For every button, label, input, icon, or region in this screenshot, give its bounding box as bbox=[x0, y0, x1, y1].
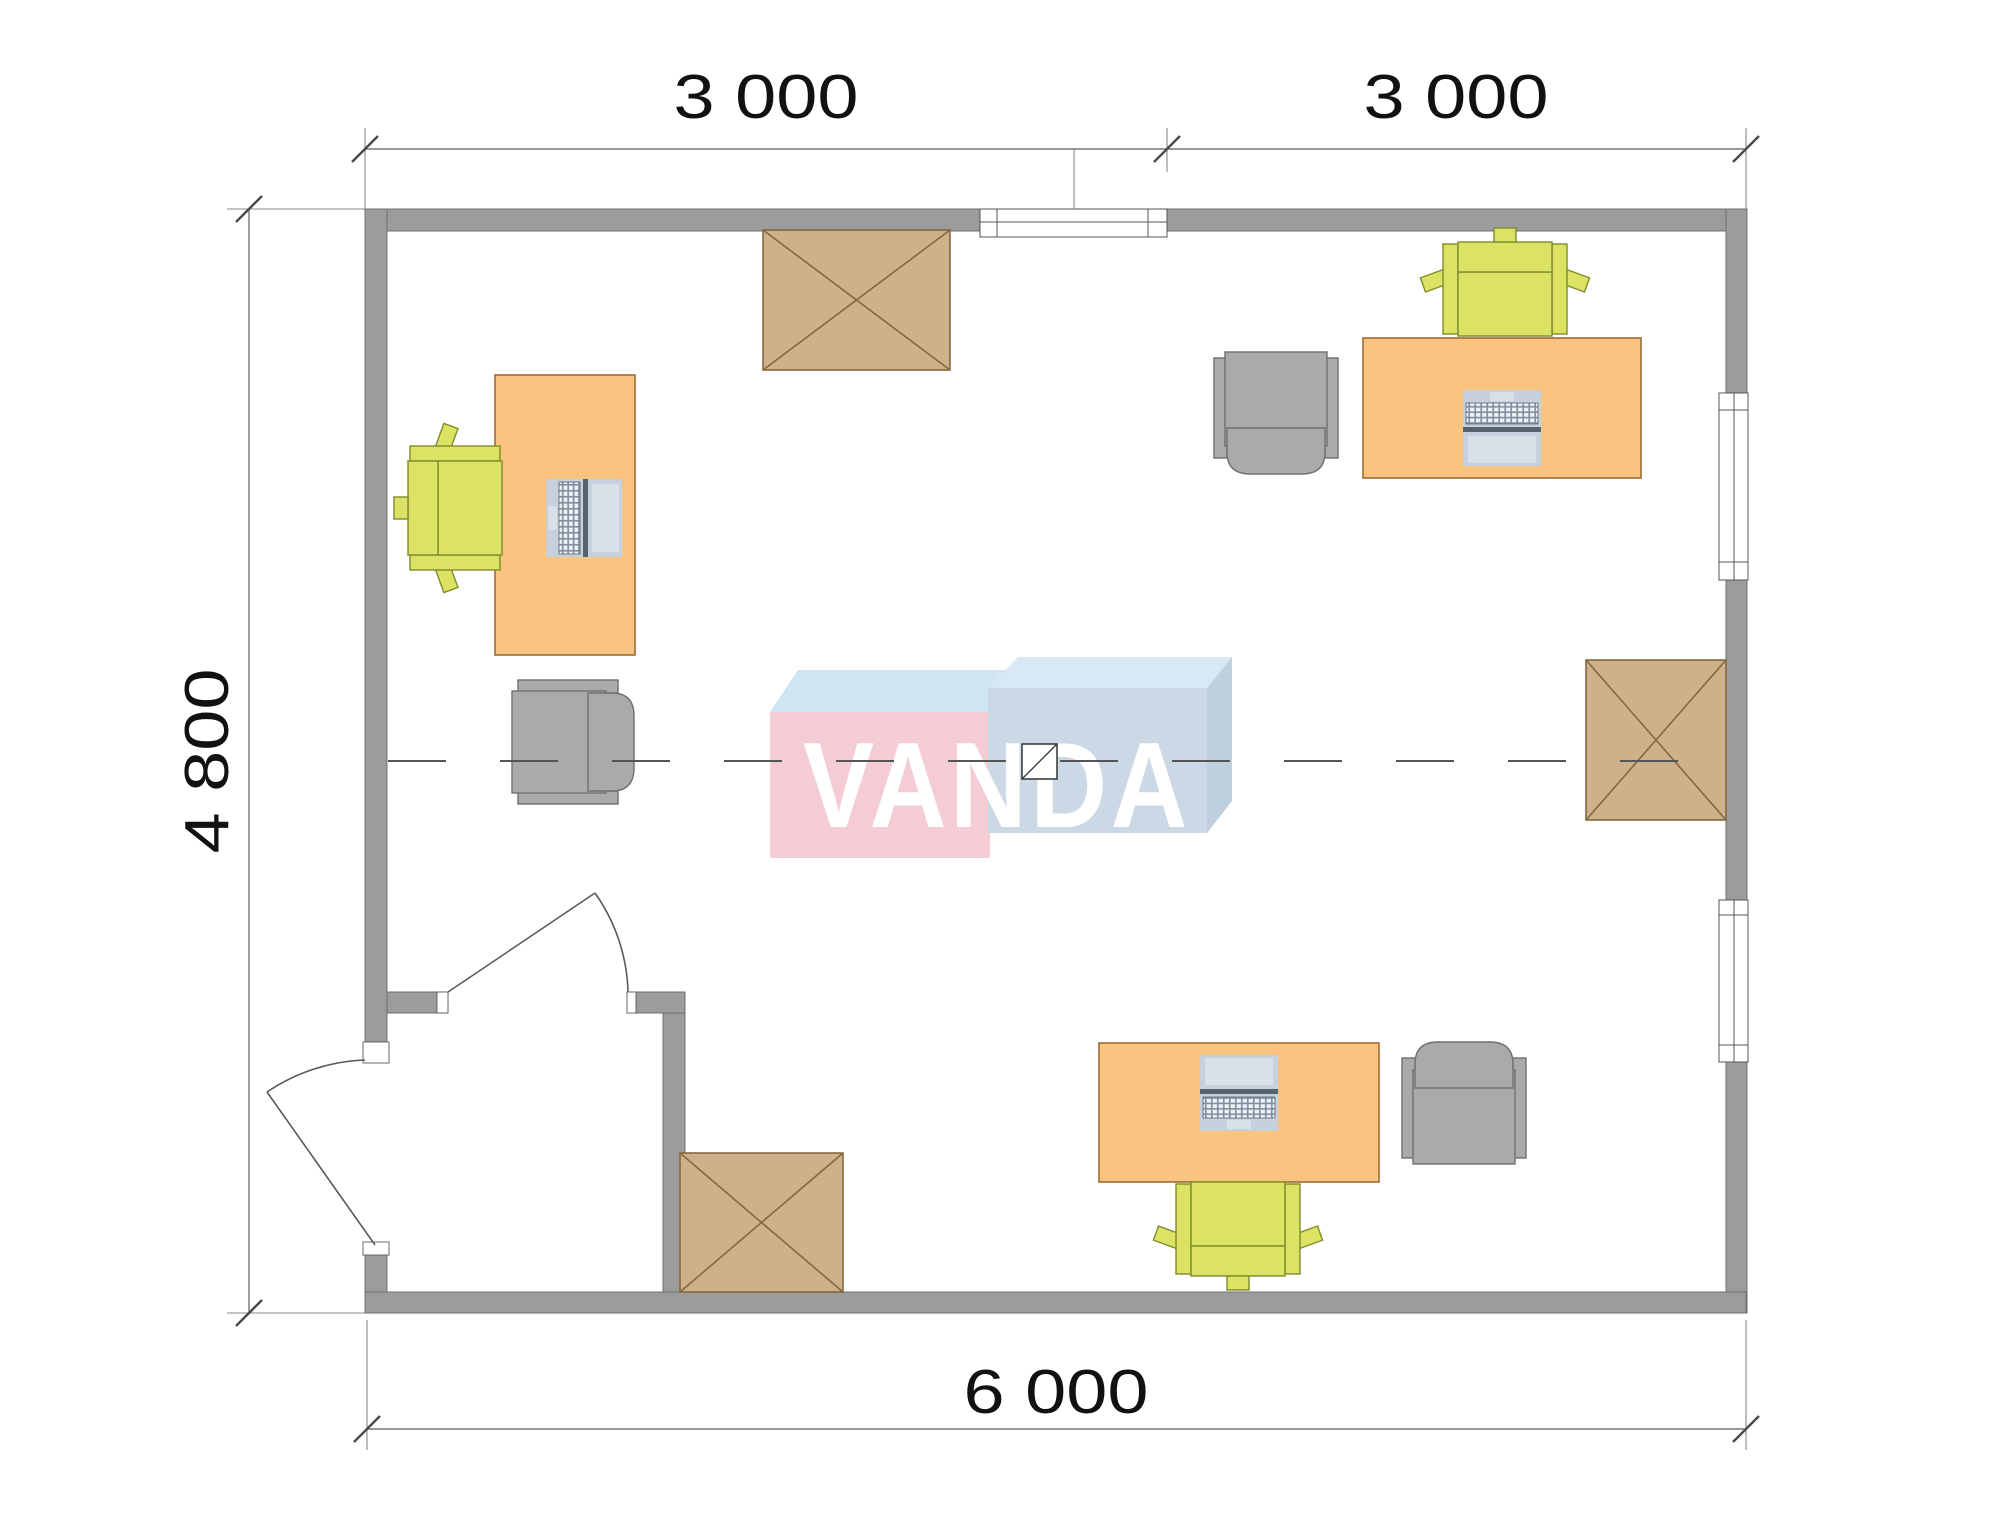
door-interior bbox=[437, 893, 636, 1013]
wall-bottom bbox=[365, 1292, 1746, 1313]
armchair-2 bbox=[1214, 352, 1338, 474]
window-right-lower bbox=[1719, 900, 1748, 1062]
door-interior-jamb-left bbox=[437, 992, 448, 1013]
window-right-upper bbox=[1719, 393, 1748, 580]
door-exterior-jamb-top bbox=[363, 1042, 389, 1063]
laptop-3 bbox=[1200, 1055, 1278, 1131]
axis-marker bbox=[1022, 744, 1057, 779]
storage-unit-top bbox=[763, 230, 950, 370]
window-top bbox=[980, 209, 1167, 237]
door-exterior-swing-arc bbox=[267, 1060, 365, 1092]
wall-right-lower bbox=[1726, 1062, 1747, 1313]
dim-label-top-left: 3 000 bbox=[674, 63, 859, 132]
logo-right-top-face bbox=[988, 657, 1232, 688]
dim-label-top-right: 3 000 bbox=[1364, 63, 1549, 132]
logo-left-top-face bbox=[770, 670, 1018, 712]
desk-chair-3 bbox=[1153, 1182, 1322, 1290]
wall-top-left-segment bbox=[365, 209, 980, 231]
storage-unit-right bbox=[1586, 660, 1726, 820]
desk-chair-1 bbox=[394, 423, 502, 592]
wall-top-right-segment bbox=[1167, 209, 1746, 231]
dimension-top: 3 000 3 000 bbox=[352, 63, 1759, 209]
dimension-bottom: 6 000 bbox=[354, 1320, 1759, 1450]
wall-left bbox=[365, 209, 387, 1042]
storage-unit-bottom bbox=[680, 1153, 843, 1292]
armchair-3 bbox=[1402, 1042, 1526, 1164]
logo-right-side-face bbox=[1207, 657, 1232, 833]
vanda-watermark-logo: VANDA bbox=[770, 657, 1232, 858]
floor-plan-drawing: VANDA bbox=[0, 0, 2000, 1520]
door-interior-jamb-right bbox=[627, 992, 636, 1013]
door-exterior-jamb-bottom bbox=[363, 1242, 389, 1255]
door-exterior bbox=[267, 1042, 389, 1255]
door-interior-leaf bbox=[448, 893, 595, 992]
door-exterior-leaf bbox=[267, 1092, 375, 1245]
door-interior-swing-arc bbox=[595, 893, 628, 992]
logo-wordmark: VANDA bbox=[803, 717, 1191, 853]
vestibule-wall-right-segment bbox=[635, 992, 685, 1013]
armchair-1 bbox=[512, 680, 634, 804]
floor-plan-page: VANDA bbox=[0, 0, 2000, 1520]
dim-label-bottom: 6 000 bbox=[964, 1358, 1149, 1427]
desk-chair-2 bbox=[1420, 228, 1589, 336]
dim-label-left: 4 800 bbox=[173, 669, 242, 854]
laptop-1 bbox=[546, 479, 622, 557]
wall-right-middle bbox=[1726, 580, 1747, 900]
laptop-2 bbox=[1463, 390, 1541, 466]
wall-right-upper bbox=[1726, 209, 1747, 393]
dimension-left: 4 800 bbox=[173, 196, 365, 1326]
